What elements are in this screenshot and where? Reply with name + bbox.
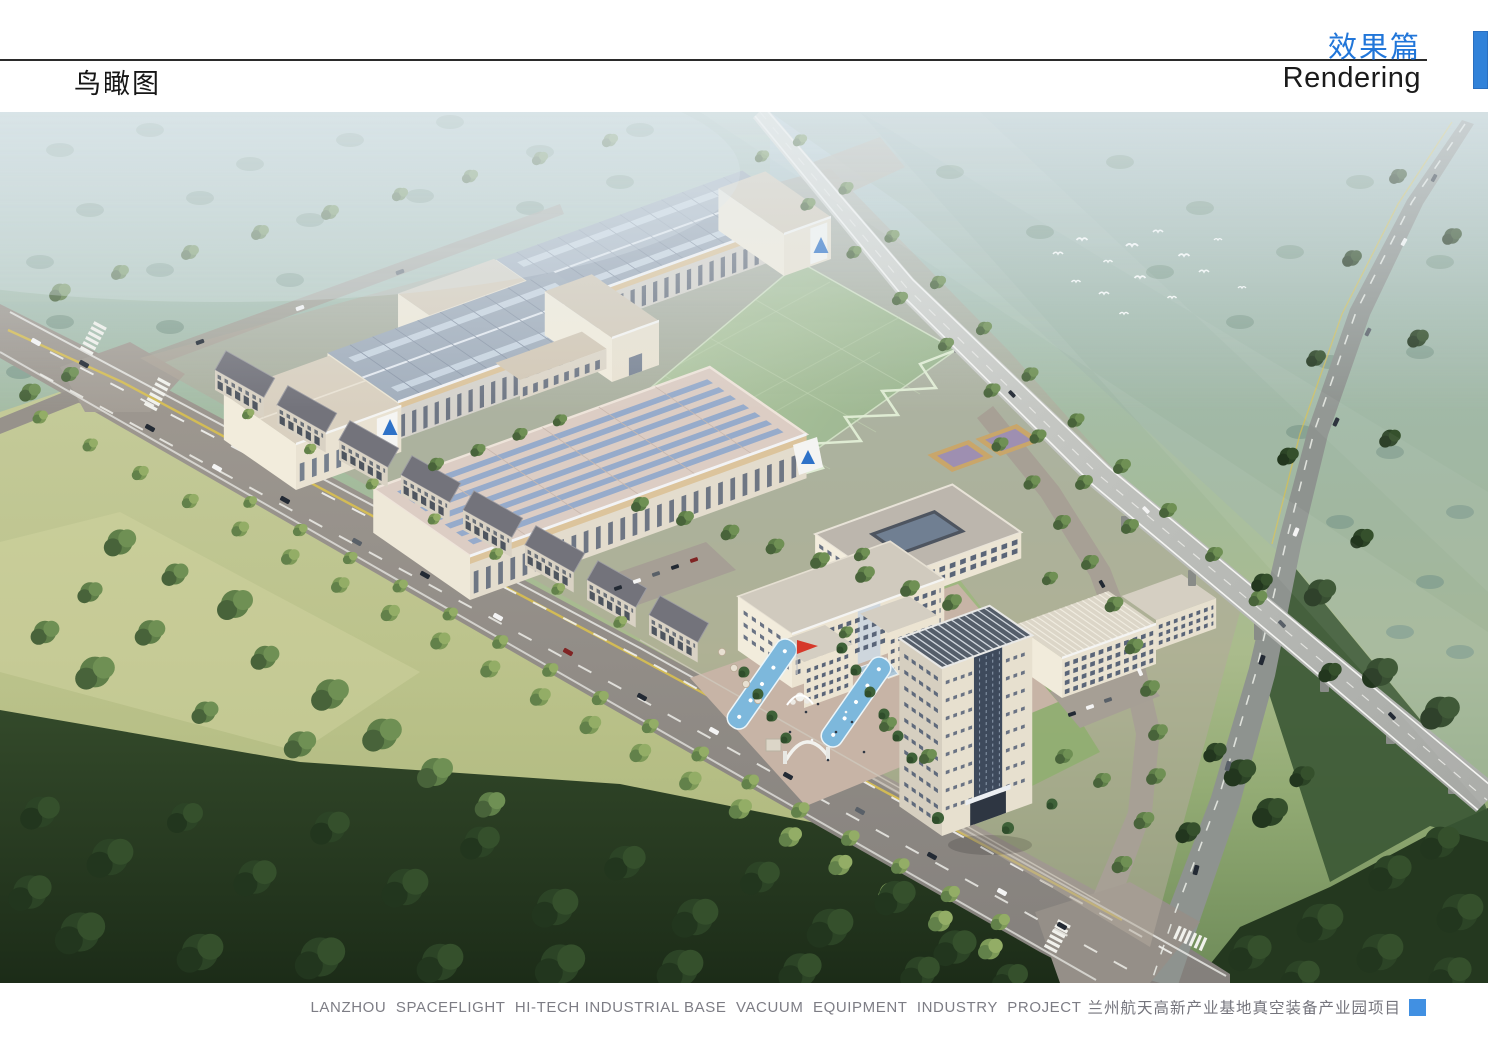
header-divider-line <box>0 59 1427 61</box>
caption-english: LANZHOU SPACEFLIGHT HI-TECH INDUSTRIAL B… <box>310 999 1081 1016</box>
header-accent-bar <box>1473 31 1488 89</box>
footer-accent-square <box>1409 999 1426 1016</box>
birds-eye-view-svg <box>0 112 1488 983</box>
footer-caption: LANZHOU SPACEFLIGHT HI-TECH INDUSTRIAL B… <box>310 996 1426 1018</box>
section-title-zh: 效果篇 <box>1328 24 1421 66</box>
presentation-page: 鸟瞰图 效果篇 Rendering <box>0 0 1488 1052</box>
aerial-rendering-image <box>0 112 1488 983</box>
section-title-en: Rendering <box>1283 62 1421 95</box>
page-title: 鸟瞰图 <box>74 62 161 101</box>
caption-chinese: 兰州航天高新产业基地真空装备产业园项目 <box>1087 996 1401 1018</box>
guard-booth <box>766 739 781 751</box>
